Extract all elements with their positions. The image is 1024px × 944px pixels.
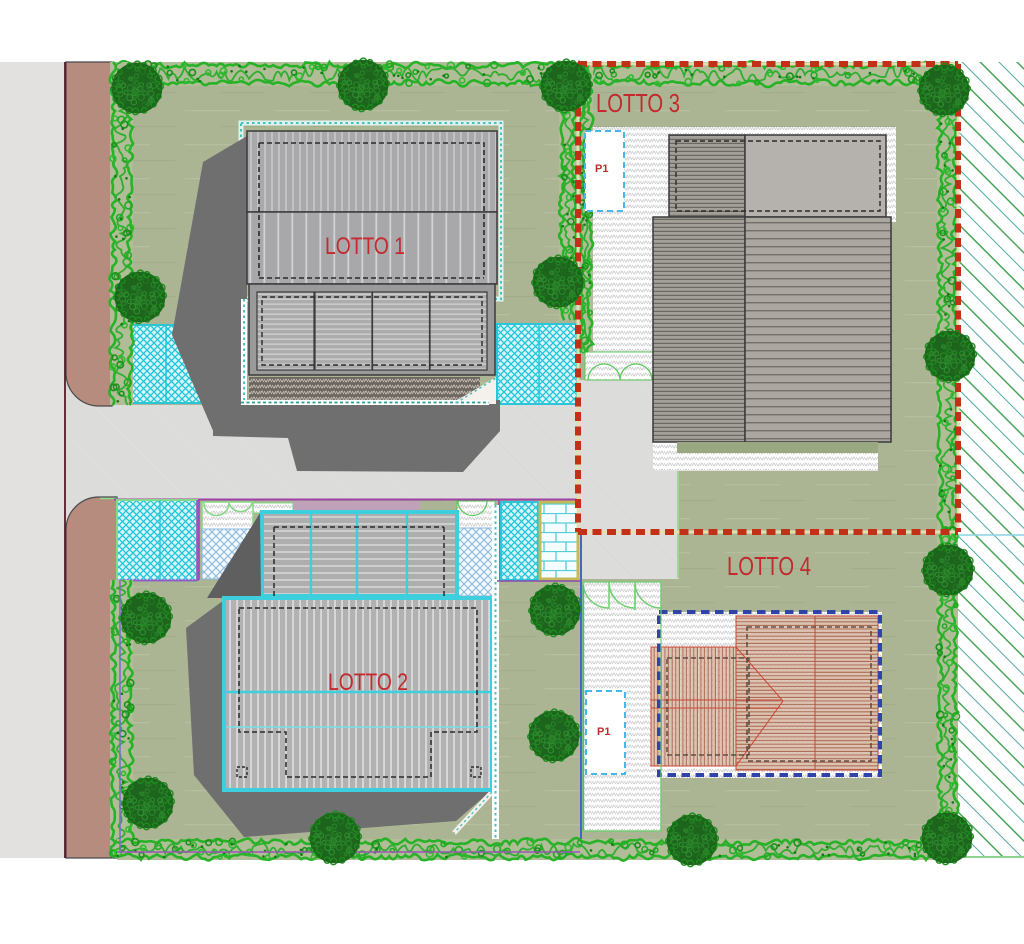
svg-text:LOTTO 3: LOTTO 3 [596, 88, 680, 118]
svg-text:LOTTO 4: LOTTO 4 [727, 551, 811, 581]
svg-text:P1: P1 [595, 163, 608, 175]
svg-text:LOTTO 2: LOTTO 2 [328, 669, 408, 696]
svg-text:P1: P1 [597, 726, 610, 738]
svg-text:LOTTO 1: LOTTO 1 [325, 233, 405, 260]
